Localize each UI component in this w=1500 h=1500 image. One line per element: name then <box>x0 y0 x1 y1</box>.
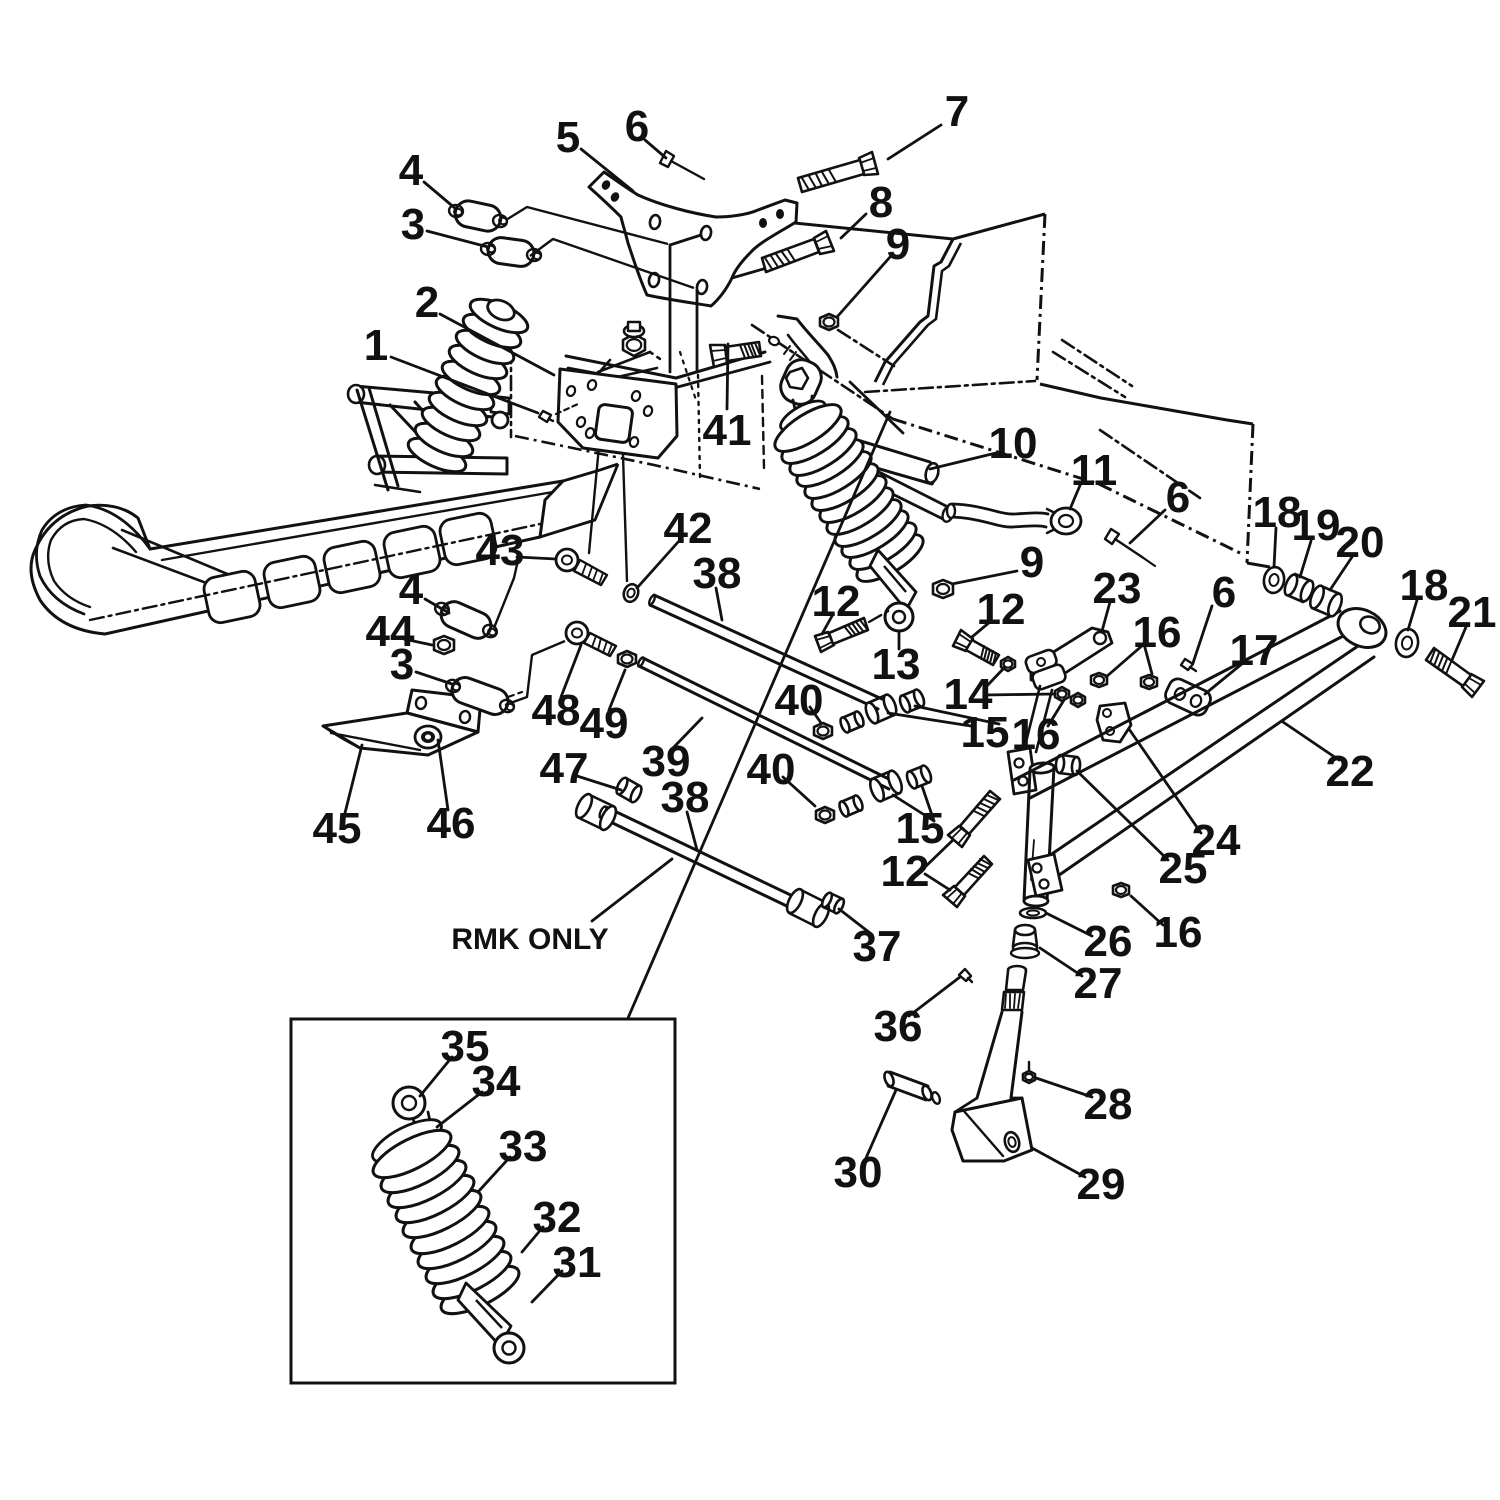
svg-text:48: 48 <box>532 686 581 735</box>
svg-text:3: 3 <box>390 640 414 689</box>
svg-text:18: 18 <box>1400 561 1449 610</box>
svg-text:RMK ONLY: RMK ONLY <box>451 923 608 956</box>
svg-text:32: 32 <box>533 1193 582 1242</box>
svg-text:9: 9 <box>886 220 910 269</box>
svg-text:38: 38 <box>661 773 710 822</box>
svg-text:40: 40 <box>747 745 796 794</box>
svg-text:33: 33 <box>499 1122 548 1171</box>
svg-text:6: 6 <box>1212 568 1236 617</box>
svg-text:10: 10 <box>989 419 1038 468</box>
svg-text:31: 31 <box>553 1238 602 1287</box>
svg-text:16: 16 <box>1154 908 1203 957</box>
svg-text:3: 3 <box>401 200 425 249</box>
svg-text:37: 37 <box>853 922 902 971</box>
svg-text:2: 2 <box>415 278 439 327</box>
svg-text:20: 20 <box>1336 518 1385 567</box>
svg-text:6: 6 <box>625 102 649 151</box>
svg-text:21: 21 <box>1448 588 1497 637</box>
svg-text:36: 36 <box>874 1002 923 1051</box>
svg-text:34: 34 <box>472 1057 521 1106</box>
svg-text:23: 23 <box>1093 564 1142 613</box>
svg-text:29: 29 <box>1077 1160 1126 1209</box>
svg-text:27: 27 <box>1074 959 1123 1008</box>
svg-text:16: 16 <box>1133 608 1182 657</box>
svg-text:12: 12 <box>812 577 861 626</box>
svg-text:12: 12 <box>881 847 930 896</box>
svg-text:49: 49 <box>580 699 629 748</box>
svg-text:1: 1 <box>364 321 388 370</box>
svg-text:4: 4 <box>399 146 424 195</box>
svg-text:47: 47 <box>540 744 589 793</box>
svg-text:7: 7 <box>945 87 969 136</box>
svg-text:19: 19 <box>1292 501 1341 550</box>
svg-text:28: 28 <box>1084 1080 1133 1129</box>
svg-text:46: 46 <box>427 799 476 848</box>
svg-text:42: 42 <box>664 504 713 553</box>
svg-text:30: 30 <box>834 1148 883 1197</box>
svg-text:25: 25 <box>1159 844 1208 893</box>
svg-text:45: 45 <box>313 804 362 853</box>
svg-text:9: 9 <box>1020 538 1044 587</box>
svg-text:6: 6 <box>1166 473 1190 522</box>
svg-text:43: 43 <box>476 526 525 575</box>
svg-text:41: 41 <box>703 406 752 455</box>
svg-text:5: 5 <box>556 113 580 162</box>
svg-text:15: 15 <box>961 708 1010 757</box>
svg-text:13: 13 <box>872 640 921 689</box>
